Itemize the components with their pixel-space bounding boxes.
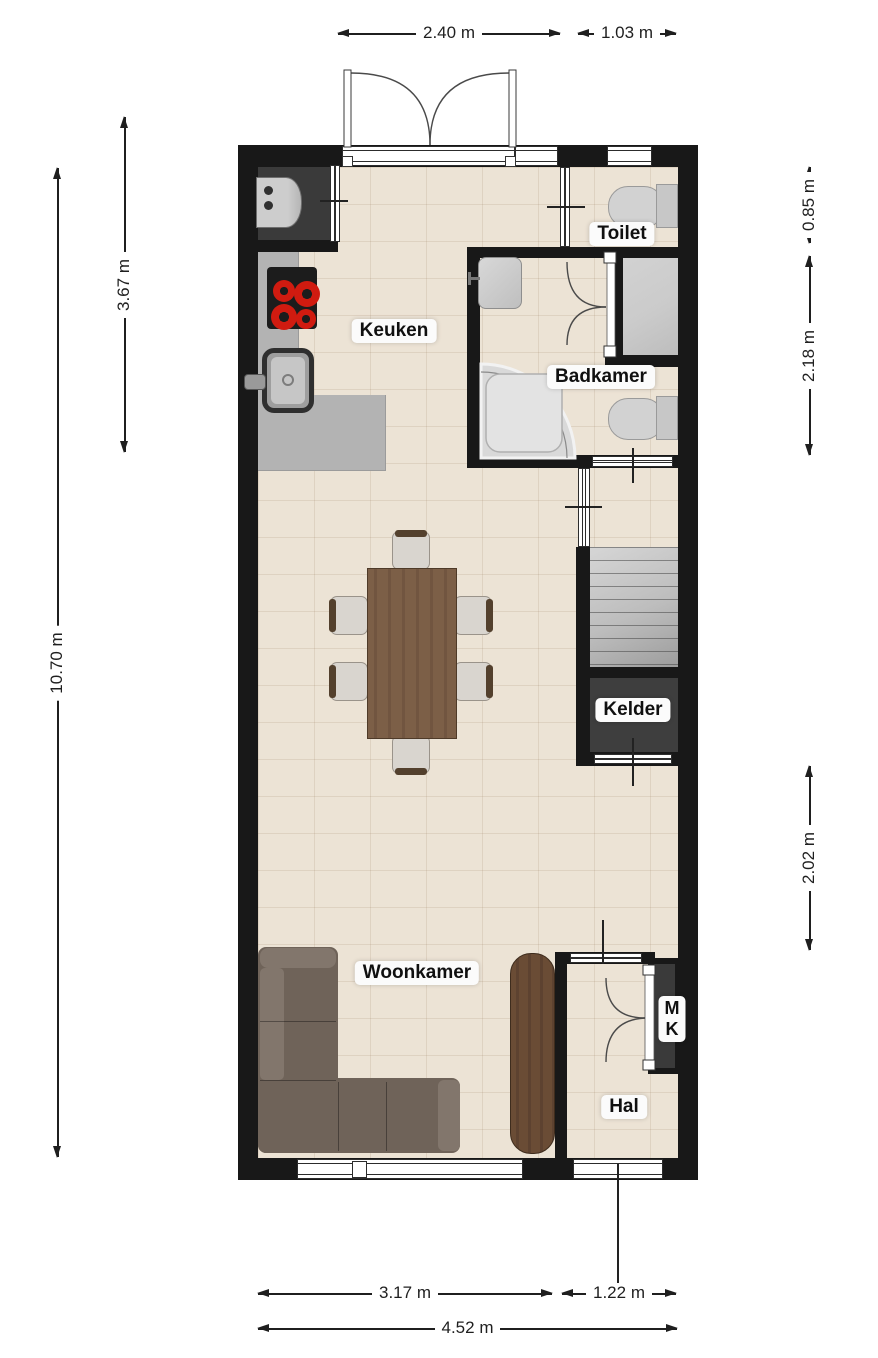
dim-top-toilet-label: 1.03 m (594, 23, 660, 43)
arrow-left-icon (561, 1289, 573, 1297)
chair-right-2 (454, 662, 492, 701)
cabinet (510, 953, 555, 1154)
kitchen-sink-drain (282, 374, 294, 386)
french-door-hinge-right (505, 156, 516, 167)
dim-bottom-woonkamer-label: 3.17 m (372, 1283, 438, 1303)
tick-kelder-window (632, 738, 634, 786)
arrow-up-icon (805, 255, 813, 267)
arrow-up-icon (805, 765, 813, 777)
closet-floor (623, 255, 678, 355)
label-woonkamer-text: Woonkamer (363, 962, 471, 983)
sofa-seam-2 (260, 1080, 336, 1081)
floorplan: Keuken Toilet Badkamer Kelder Woonkamer … (0, 0, 878, 1358)
dim-bottom-hal-label: 1.22 m (586, 1283, 652, 1303)
arrow-right-icon (666, 1324, 678, 1332)
label-kelder: Kelder (595, 698, 670, 722)
arrow-down-icon (53, 1146, 61, 1158)
dim-right-stair-hal-label: 2.02 m (799, 825, 819, 891)
chair-back (329, 599, 336, 632)
wall-stairs-kelder (576, 667, 678, 678)
wall-left (238, 145, 258, 1180)
sofa-armrest-right (438, 1080, 460, 1151)
arrow-right-icon (665, 29, 677, 37)
sofa-seam-4 (386, 1082, 387, 1151)
window-woonkamer (297, 1159, 523, 1179)
french-door-threshold (342, 146, 515, 166)
label-badkamer: Badkamer (547, 365, 655, 389)
dim-top-doors-label: 2.40 m (416, 23, 482, 43)
appliance-knob-2 (264, 201, 273, 210)
arrow-left-icon (337, 29, 349, 37)
label-toilet: Toilet (589, 222, 654, 246)
window-woonkamer-hal (570, 953, 642, 963)
label-meterkast: M K (659, 996, 686, 1042)
dim-bottom-hal: 1.22 m (562, 1283, 676, 1303)
arrow-left-icon (257, 1289, 269, 1297)
dim-bottom-total: 4.52 m (258, 1318, 677, 1338)
arrow-right-icon (549, 29, 561, 37)
sofa-back-left (260, 968, 284, 1080)
wall-woonkamer-hal (555, 952, 567, 1158)
chair-right-1 (454, 596, 492, 635)
bath-sink-faucet-knob (468, 272, 471, 285)
french-door-hinge-left (342, 156, 353, 167)
arrow-down-icon (805, 444, 813, 456)
tick-hal-window (602, 920, 604, 964)
dim-bottom-total-label: 4.52 m (435, 1318, 501, 1338)
bath-toilet-tank (656, 396, 678, 440)
tick-front-door (617, 1164, 619, 1298)
chair-bottom (392, 735, 430, 774)
stove-burner-3 (271, 304, 297, 330)
label-woonkamer: Woonkamer (355, 961, 479, 985)
chair-top (392, 531, 430, 570)
stove-burner-2 (294, 281, 320, 307)
chair-back (486, 599, 493, 632)
tick-toilet-entry (547, 206, 585, 208)
french-door-arc-right (430, 73, 509, 145)
arrow-right-icon (541, 1289, 553, 1297)
arrow-up-icon (53, 167, 61, 179)
arrow-up-icon (120, 116, 128, 128)
appliance-knob-1 (264, 186, 273, 195)
sofa-horizontal (258, 1078, 460, 1153)
chair-back (329, 665, 336, 698)
dim-left-total-label: 10.70 m (47, 625, 67, 700)
dim-right-badkamer: 2.18 m (799, 256, 819, 455)
bath-sink (478, 257, 522, 309)
sofa-armrest-top (260, 948, 336, 968)
window-toilet (607, 146, 652, 166)
chair-back (486, 665, 493, 698)
chair-back (395, 530, 427, 537)
label-kelder-text: Kelder (603, 699, 662, 720)
arrow-down-icon (805, 939, 813, 951)
label-meterkast-m: M (665, 998, 680, 1019)
tick-kitchen-window (320, 200, 348, 202)
french-door-arc-left (351, 73, 430, 145)
dim-right-toilet: 0.85 m (799, 167, 819, 243)
dim-left-total: 10.70 m (47, 168, 67, 1157)
label-badkamer-text: Badkamer (555, 366, 647, 387)
tick-badkamer-window (632, 448, 634, 483)
stove-burner-4 (296, 309, 316, 329)
dim-left-kitchen: 3.67 m (114, 117, 134, 452)
label-toilet-text: Toilet (597, 223, 646, 244)
label-meterkast-k: K (665, 1019, 680, 1040)
label-hal: Hal (601, 1095, 647, 1119)
kitchen-faucet (244, 374, 266, 390)
arrow-left-icon (577, 29, 589, 37)
window-top-right-of-doors (515, 146, 558, 166)
window-mullion (352, 1161, 367, 1178)
chair-left-1 (330, 596, 368, 635)
staircase (590, 547, 678, 667)
dim-right-toilet-label: 0.85 m (799, 172, 819, 238)
arrow-right-icon (665, 1289, 677, 1297)
dim-right-stair-hal: 2.02 m (799, 766, 819, 950)
dim-right-badkamer-label: 2.18 m (799, 323, 819, 389)
label-keuken-text: Keuken (360, 320, 429, 341)
dining-table (367, 568, 457, 739)
label-keuken: Keuken (352, 319, 437, 343)
chair-back (395, 768, 427, 775)
arrow-down-icon (120, 441, 128, 453)
wall-closet-left (612, 255, 623, 365)
wall-stairs-left (576, 547, 590, 766)
arrow-left-icon (257, 1324, 269, 1332)
dim-left-kitchen-label: 3.67 m (114, 252, 134, 318)
dim-top-doors: 2.40 m (338, 23, 560, 43)
label-hal-text: Hal (609, 1096, 639, 1117)
window-kitchen-niche (330, 165, 340, 242)
chair-left-2 (330, 662, 368, 701)
sofa-seam-3 (338, 1082, 339, 1151)
wc-toilet-tank (656, 184, 678, 228)
sofa-seam-1 (260, 1021, 336, 1022)
tick-landing-entry (565, 506, 602, 508)
french-door-leaf-right (509, 70, 516, 147)
stove-burner-1 (273, 280, 295, 302)
dim-bottom-woonkamer: 3.17 m (258, 1283, 552, 1303)
french-door-leaf-left (344, 70, 351, 147)
appliance (256, 177, 302, 228)
dim-top-toilet: 1.03 m (578, 23, 676, 43)
